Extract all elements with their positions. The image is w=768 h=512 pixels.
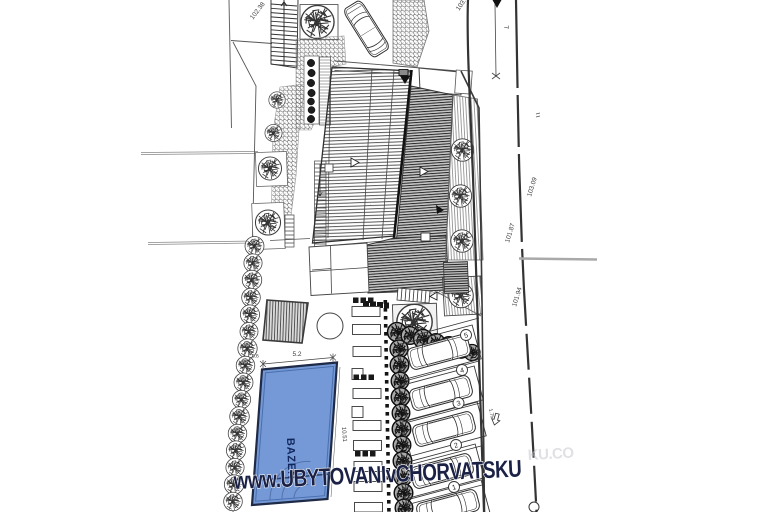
svg-text:5.2: 5.2	[292, 351, 301, 358]
svg-text:0.6: 0.6	[252, 353, 260, 360]
svg-text:10.51: 10.51	[340, 427, 347, 443]
svg-text:KU.CO: KU.CO	[527, 445, 574, 464]
